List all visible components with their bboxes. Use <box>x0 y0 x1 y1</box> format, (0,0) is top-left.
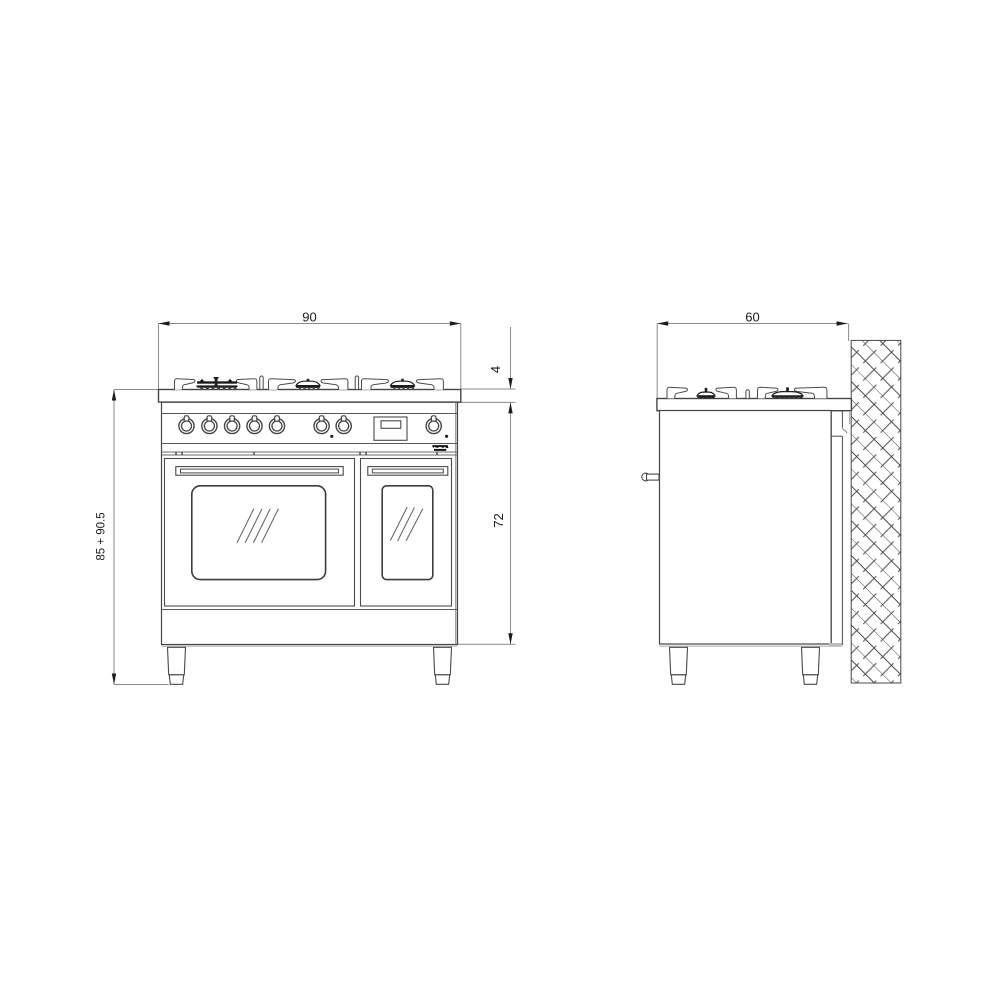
svg-text:60: 60 <box>745 310 759 325</box>
svg-text:4: 4 <box>488 366 503 373</box>
svg-text:72: 72 <box>491 513 506 527</box>
svg-text:90: 90 <box>302 310 316 325</box>
svg-text:85 + 90.5: 85 + 90.5 <box>96 512 108 560</box>
